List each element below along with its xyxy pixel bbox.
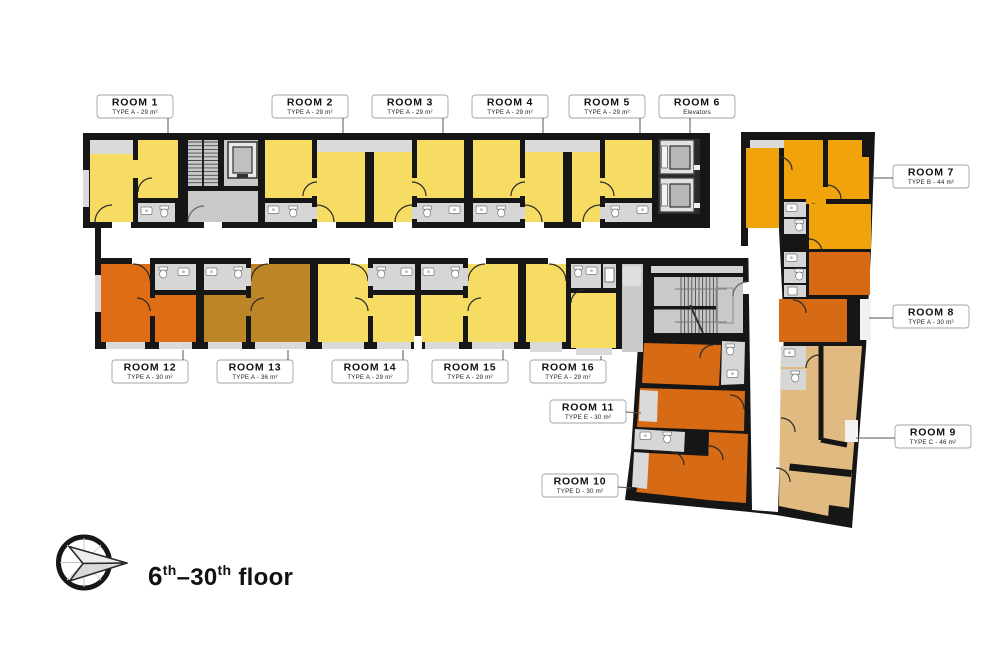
svg-text:ROOM 12: ROOM 12: [124, 362, 177, 374]
svg-text:TYPE A - 29 m²: TYPE A - 29 m²: [347, 374, 392, 381]
svg-text:TYPE A - 30 m²: TYPE A - 30 m²: [127, 374, 172, 381]
svg-text:ROOM 11: ROOM 11: [562, 402, 614, 414]
svg-text:ROOM 16: ROOM 16: [542, 362, 595, 374]
svg-text:TYPE A - 29 m²: TYPE A - 29 m²: [545, 374, 590, 381]
svg-text:ROOM 6: ROOM 6: [674, 97, 720, 109]
svg-text:ROOM 2: ROOM 2: [287, 97, 333, 109]
svg-text:TYPE A - 29 m²: TYPE A - 29 m²: [487, 109, 532, 116]
svg-text:ROOM 13: ROOM 13: [229, 362, 282, 374]
svg-text:TYPE A - 30 m²: TYPE A - 30 m²: [908, 319, 953, 326]
svg-text:ROOM 10: ROOM 10: [554, 476, 607, 488]
svg-text:ROOM 8: ROOM 8: [908, 307, 954, 319]
svg-text:ROOM 4: ROOM 4: [487, 97, 533, 109]
svg-text:ROOM 3: ROOM 3: [387, 97, 433, 109]
svg-text:TYPE B - 44 m²: TYPE B - 44 m²: [908, 179, 954, 186]
svg-text:Elevators: Elevators: [683, 109, 711, 116]
svg-text:TYPE A - 29 m²: TYPE A - 29 m²: [287, 109, 332, 116]
svg-text:TYPE A - 36 m²: TYPE A - 36 m²: [232, 374, 277, 381]
svg-text:ROOM 7: ROOM 7: [908, 167, 954, 179]
svg-text:ROOM 5: ROOM 5: [584, 97, 630, 109]
svg-text:TYPE E - 30 m²: TYPE E - 30 m²: [565, 414, 611, 421]
svg-text:ROOM 14: ROOM 14: [344, 362, 397, 374]
svg-text:TYPE A - 29 m²: TYPE A - 29 m²: [447, 374, 492, 381]
svg-text:TYPE A - 29 m²: TYPE A - 29 m²: [112, 109, 157, 116]
svg-text:TYPE D - 30 m²: TYPE D - 30 m²: [557, 488, 603, 495]
svg-text:ROOM 1: ROOM 1: [112, 97, 158, 109]
svg-text:TYPE C - 46 m²: TYPE C - 46 m²: [910, 439, 956, 446]
svg-text:TYPE A - 29 m²: TYPE A - 29 m²: [584, 109, 629, 116]
svg-text:ROOM 9: ROOM 9: [910, 427, 956, 439]
svg-text:ROOM 15: ROOM 15: [444, 362, 497, 374]
svg-text:TYPE A - 29 m²: TYPE A - 29 m²: [387, 109, 432, 116]
